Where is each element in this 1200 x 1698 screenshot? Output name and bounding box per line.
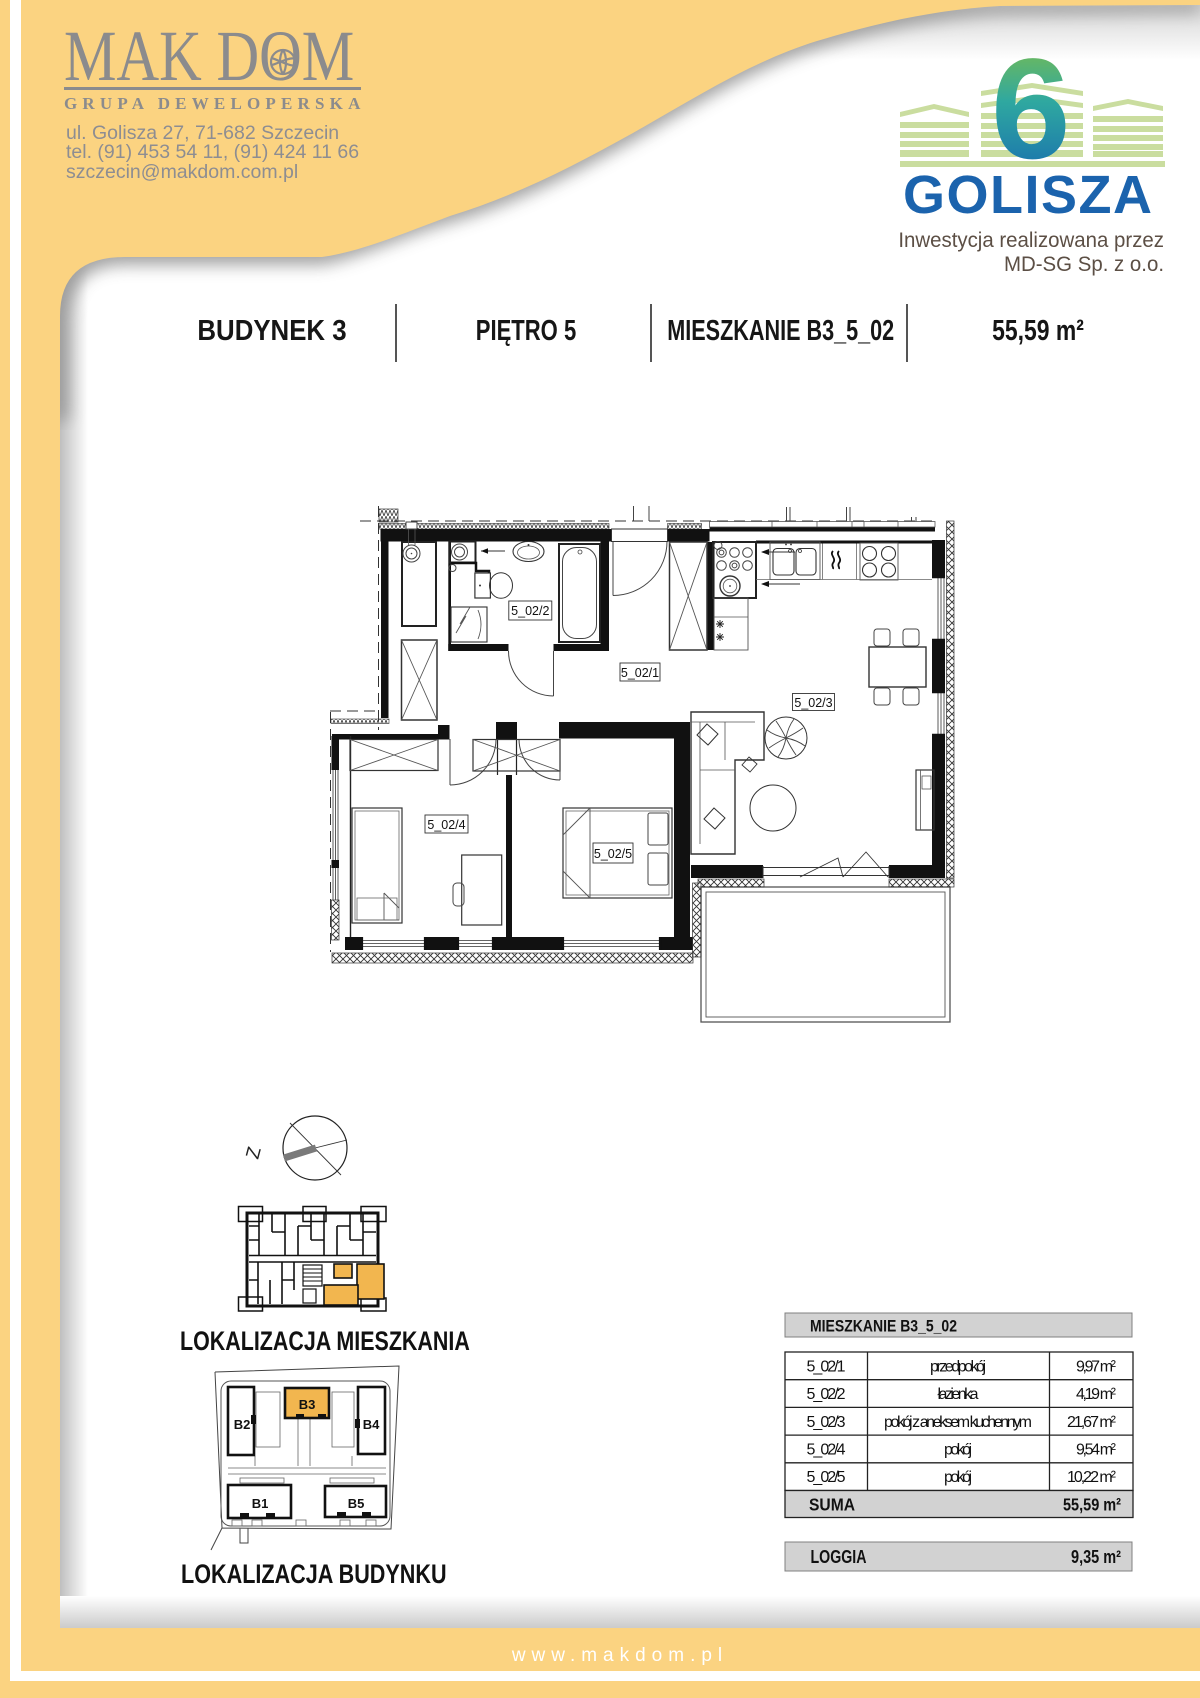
svg-text:B4: B4 [363, 1417, 380, 1432]
svg-text:9,35 m²: 9,35 m² [1071, 1547, 1121, 1567]
svg-text:B3: B3 [299, 1397, 316, 1412]
svg-text:B1: B1 [252, 1496, 269, 1511]
svg-text:5_02/5: 5_02/5 [594, 847, 632, 861]
svg-text:Z: Z [243, 1144, 266, 1161]
svg-text:łazienka: łazienka [938, 1386, 979, 1403]
svg-text:5_02/3: 5_02/3 [794, 696, 832, 710]
svg-text:pokój z aneksem kuchennym: pokój z aneksem kuchennym [884, 1414, 1032, 1431]
svg-text:5_02/1: 5_02/1 [621, 666, 659, 680]
svg-text:B5: B5 [348, 1496, 365, 1511]
svg-text:9,97 m²: 9,97 m² [1076, 1358, 1117, 1375]
svg-text:przedpokój: przedpokój [930, 1358, 986, 1375]
svg-text:pokój: pokój [944, 1469, 972, 1486]
svg-text:5_02/5: 5_02/5 [807, 1469, 846, 1486]
svg-text:5_02/2: 5_02/2 [511, 604, 549, 618]
svg-text:21,67 m²: 21,67 m² [1067, 1414, 1117, 1431]
svg-text:B2: B2 [234, 1417, 251, 1432]
svg-text:9,54 m²: 9,54 m² [1076, 1442, 1117, 1459]
svg-text:10,22 m²: 10,22 m² [1067, 1469, 1117, 1486]
svg-text:5_02/4: 5_02/4 [427, 818, 465, 832]
svg-text:5_02/3: 5_02/3 [807, 1414, 846, 1431]
svg-text:SUMA: SUMA [809, 1495, 855, 1515]
svg-text:pokój: pokój [944, 1442, 972, 1459]
svg-text:5_02/1: 5_02/1 [807, 1358, 846, 1375]
svg-text:4,19 m²: 4,19 m² [1076, 1386, 1117, 1403]
svg-text:MIESZKANIE B3_5_02: MIESZKANIE B3_5_02 [810, 1317, 957, 1336]
svg-text:5_02/4: 5_02/4 [807, 1442, 846, 1459]
svg-text:55,59 m²: 55,59 m² [1063, 1495, 1121, 1515]
svg-text:LOGGIA: LOGGIA [811, 1547, 867, 1567]
svg-text:5_02/2: 5_02/2 [807, 1386, 846, 1403]
